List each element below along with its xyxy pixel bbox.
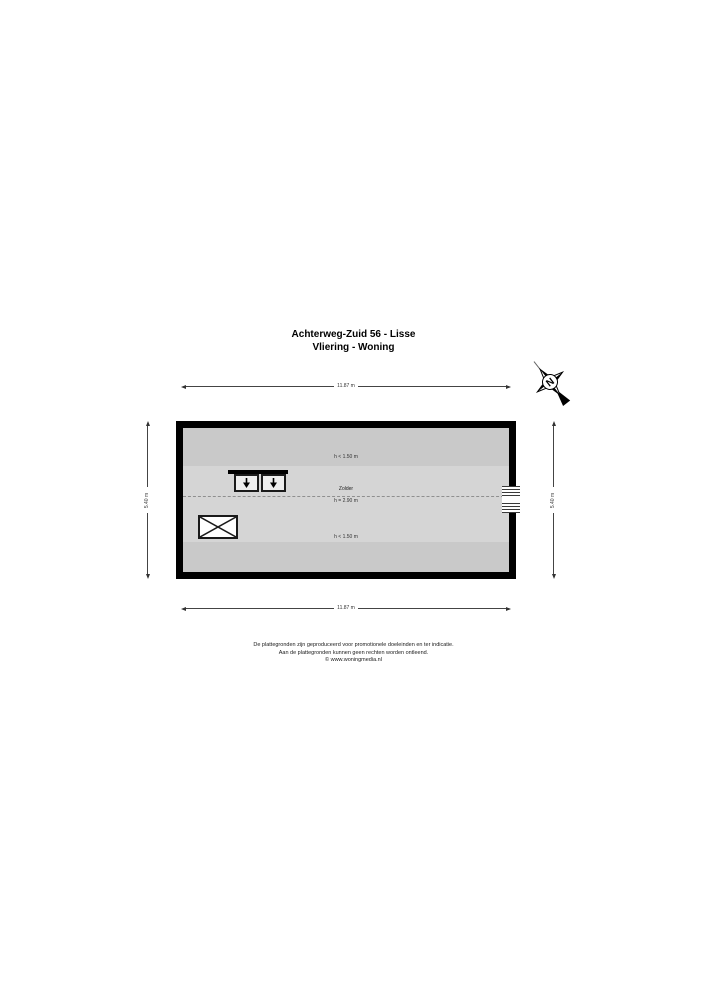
wall-window-icon (502, 486, 520, 513)
roof-ridge-line (183, 496, 509, 497)
glazing-lines (502, 503, 520, 513)
dimension-line (147, 426, 148, 487)
dimension-right: 5.40 m (549, 421, 558, 579)
dimension-line (553, 426, 554, 487)
north-arrow-icon: N (526, 355, 574, 414)
zone-top-low-headroom-label: h < 1.50 m (183, 455, 509, 460)
floor-opening-icon (198, 515, 238, 539)
roof-window-icon (261, 474, 286, 492)
dimension-line (358, 608, 506, 609)
disclaimer-line-2: Aan de plattegronden kunnen geen rechten… (0, 650, 707, 658)
glazing-lines (502, 486, 520, 496)
arrow-right-icon (506, 607, 511, 611)
dimension-top: 11.87 m (181, 382, 511, 391)
dimension-bottom-label: 11.87 m (334, 606, 358, 611)
dimension-line (553, 513, 554, 574)
dimension-line (186, 386, 334, 387)
dimension-left-label: 5.40 m (143, 487, 152, 513)
floor-plan-interior: h < 1.50 m Zolder h = 2.90 m h < 1.50 m (183, 428, 509, 572)
arrow-down-icon (146, 574, 150, 579)
dimension-bottom: 11.87 m (181, 604, 511, 613)
zone-zolder-label: Zolder (183, 487, 509, 492)
disclaimer: De plattegronden zijn geproduceerd voor … (0, 642, 707, 665)
page-title: Achterweg-Zuid 56 - Lisse Vliering - Won… (0, 329, 707, 354)
down-arrow-icon (269, 477, 278, 489)
address-title: Achterweg-Zuid 56 - Lisse (0, 329, 707, 342)
dimension-line (358, 386, 506, 387)
disclaimer-line-3: © www.woningmedia.nl (0, 657, 707, 665)
floor-plan: h < 1.50 m Zolder h = 2.90 m h < 1.50 m (176, 421, 516, 579)
down-arrow-icon (242, 477, 251, 489)
disclaimer-line-1: De plattegronden zijn geproduceerd voor … (0, 642, 707, 650)
dimension-left: 5.40 m (143, 421, 152, 579)
zone-zolder-height-label: h = 2.90 m (183, 499, 509, 504)
floorplan-page: Achterweg-Zuid 56 - Lisse Vliering - Won… (0, 0, 707, 1000)
dimension-line (186, 608, 334, 609)
roof-window-icon (234, 474, 259, 492)
arrow-down-icon (552, 574, 556, 579)
dimension-top-label: 11.87 m (334, 384, 358, 389)
floor-subtitle: Vliering - Woning (0, 342, 707, 355)
dimension-line (147, 513, 148, 574)
arrow-right-icon (506, 385, 511, 389)
dimension-right-label: 5.40 m (549, 487, 558, 513)
